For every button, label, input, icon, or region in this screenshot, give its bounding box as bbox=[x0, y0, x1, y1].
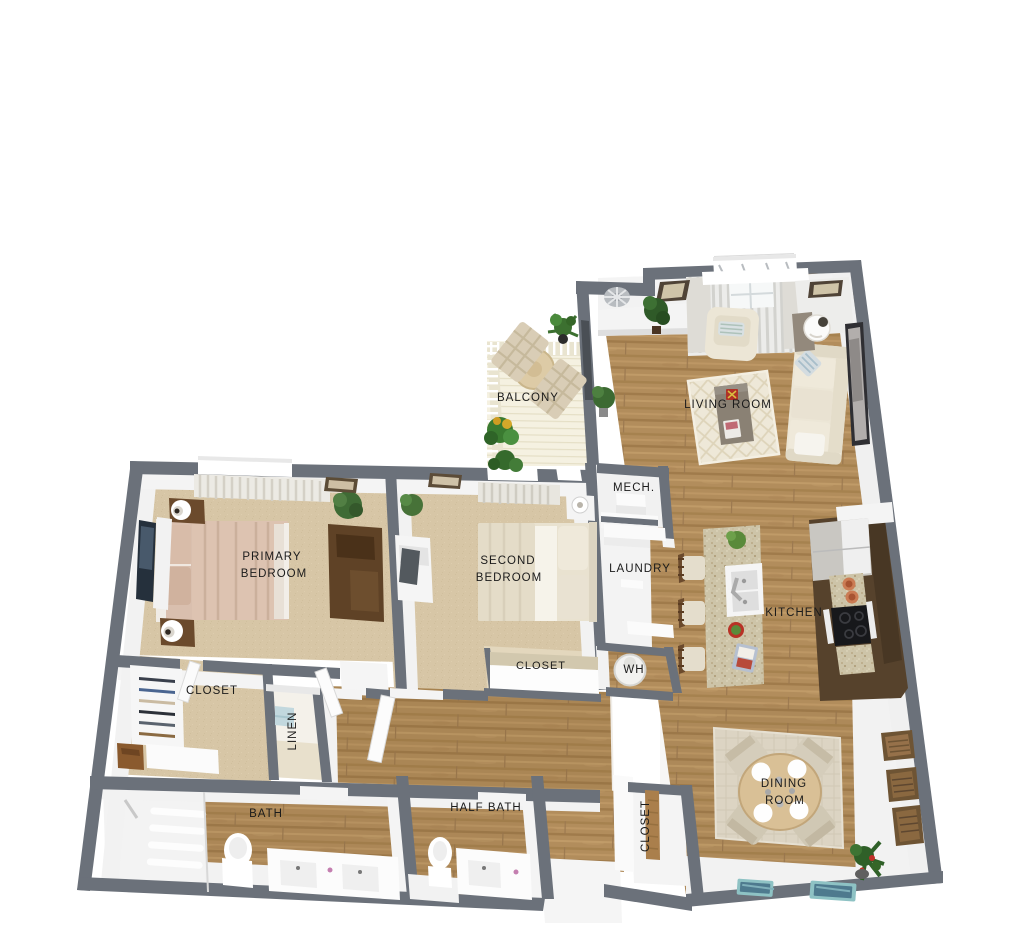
svg-text:CLOSET: CLOSET bbox=[186, 685, 238, 697]
svg-text:WH: WH bbox=[623, 664, 644, 676]
svg-text:BEDROOM: BEDROOM bbox=[241, 568, 307, 580]
svg-text:LIVING ROOM: LIVING ROOM bbox=[684, 399, 772, 411]
svg-text:SECOND: SECOND bbox=[480, 555, 535, 567]
svg-text:DINING: DINING bbox=[761, 778, 807, 790]
svg-text:CLOSET: CLOSET bbox=[640, 800, 652, 852]
svg-text:BEDROOM: BEDROOM bbox=[476, 572, 542, 584]
svg-text:BALCONY: BALCONY bbox=[497, 392, 559, 404]
svg-text:PRIMARY: PRIMARY bbox=[242, 551, 301, 563]
svg-text:MECH.: MECH. bbox=[613, 482, 655, 494]
svg-text:LAUNDRY: LAUNDRY bbox=[609, 563, 671, 575]
svg-text:BATH: BATH bbox=[249, 808, 283, 820]
svg-text:CLOSET: CLOSET bbox=[516, 660, 566, 672]
svg-text:HALF BATH: HALF BATH bbox=[450, 802, 521, 814]
svg-text:ROOM: ROOM bbox=[765, 795, 805, 807]
svg-text:KITCHEN: KITCHEN bbox=[765, 607, 822, 619]
svg-text:LINEN: LINEN bbox=[287, 712, 299, 751]
